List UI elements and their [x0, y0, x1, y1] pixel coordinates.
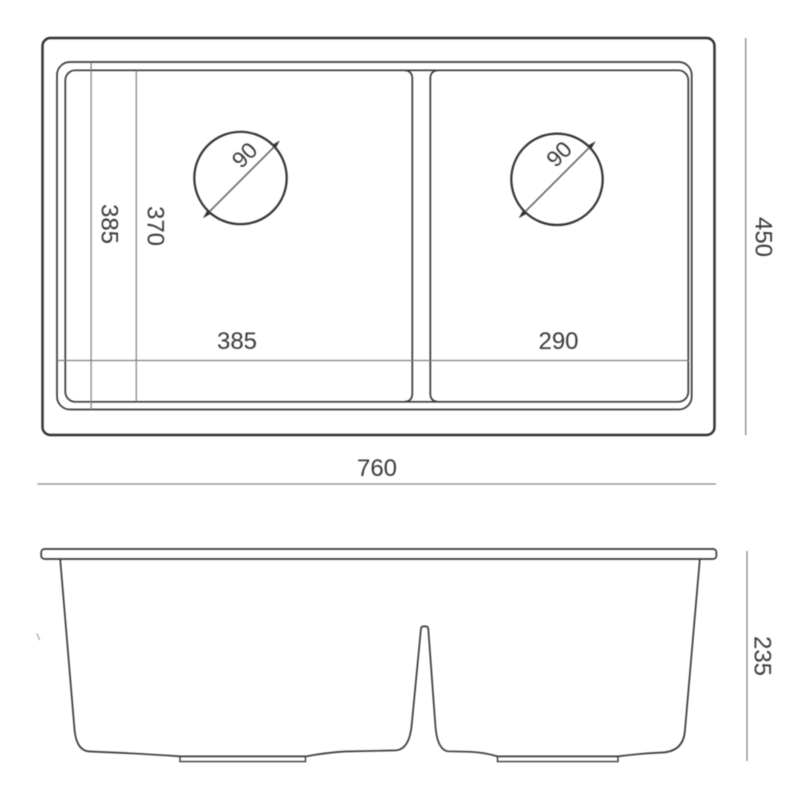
svg-text:760: 760 [357, 455, 397, 482]
svg-text:235: 235 [749, 636, 776, 676]
svg-text:90: 90 [227, 138, 262, 173]
svg-text:385: 385 [217, 328, 257, 355]
svg-text:450: 450 [750, 217, 777, 257]
svg-text:370: 370 [142, 206, 169, 246]
svg-text:385: 385 [96, 204, 123, 244]
svg-text:290: 290 [538, 328, 578, 355]
svg-text:90: 90 [542, 137, 577, 172]
